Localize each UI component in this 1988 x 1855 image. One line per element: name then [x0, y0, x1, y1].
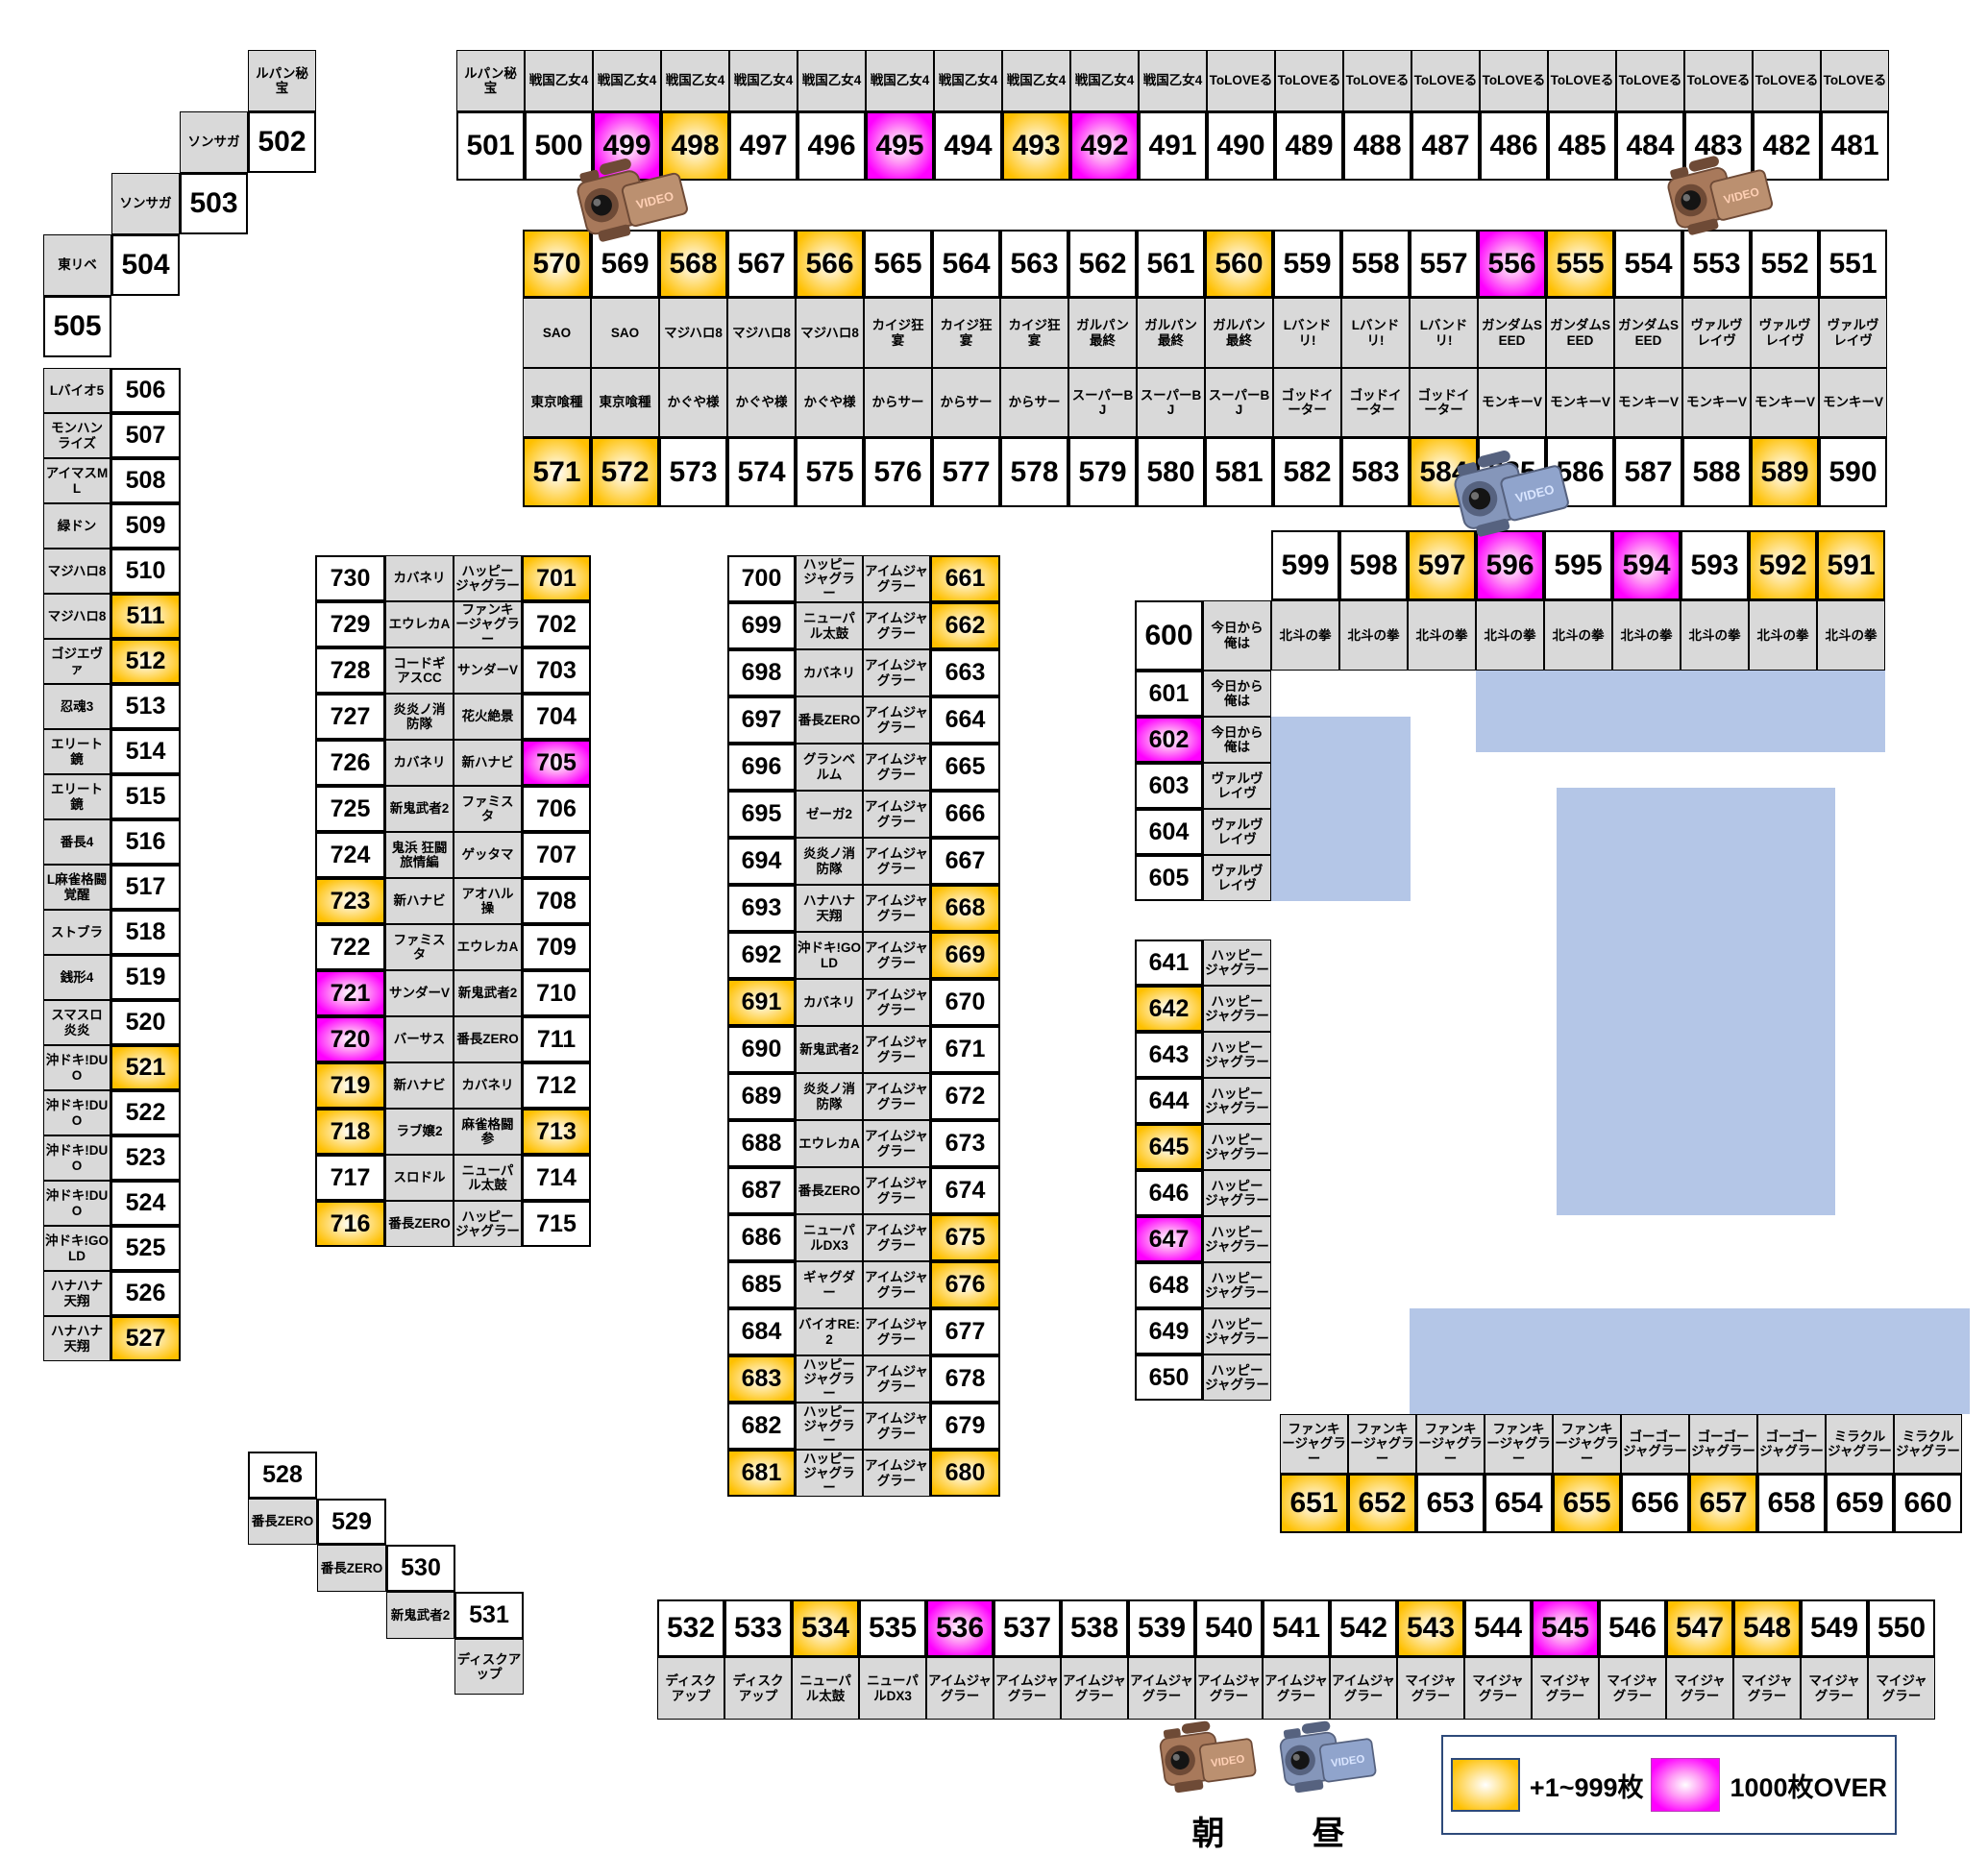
machine-cell-540: 540	[1195, 1599, 1263, 1657]
game-title-label: 戦国乙女4	[593, 50, 661, 111]
game-title-label: カイジ狂宴	[1000, 298, 1068, 368]
machine-cell-590: 590	[1819, 437, 1887, 507]
game-title-label: ミラクルジャグラー	[1894, 1414, 1962, 1474]
game-title-label: ファミスタ	[454, 786, 522, 832]
game-title-label: ファミスタ	[385, 924, 454, 970]
magenta-highlight-swatch-icon	[1651, 1758, 1720, 1812]
game-title-label: ゴジエヴァ	[43, 639, 110, 684]
game-title-label: ソンサガ	[111, 173, 180, 234]
machine-cell-712: 712	[522, 1062, 591, 1109]
video-camera-morning-icon: VIDEO	[1667, 152, 1775, 245]
game-title-label: アイムジャグラー	[1330, 1657, 1397, 1720]
game-title-label: ハッピージャグラー	[1203, 1355, 1271, 1401]
machine-cell-574: 574	[727, 437, 796, 507]
machine-cell-661: 661	[930, 555, 1000, 602]
game-title-label: ハッピージャグラー	[796, 555, 863, 602]
machine-cell-730: 730	[315, 555, 385, 601]
camcorder-icon: VIDEO	[566, 141, 699, 264]
machine-cell-728: 728	[315, 647, 385, 694]
machine-cell-549: 549	[1801, 1599, 1868, 1657]
machine-cell-548: 548	[1733, 1599, 1801, 1657]
machine-cell-537: 537	[994, 1599, 1061, 1657]
game-title-label: からサー	[932, 368, 1000, 437]
game-title-label: ヴァルヴレイヴ	[1203, 855, 1271, 901]
machine-cell-533: 533	[724, 1599, 792, 1657]
game-title-label: Lバイオ5	[43, 368, 110, 413]
machine-cell-497: 497	[729, 111, 798, 181]
vacant-floor-zone	[1476, 671, 1885, 752]
game-title-label: モンキーV	[1682, 368, 1751, 437]
game-title-label: アイムジャグラー	[863, 1355, 930, 1403]
machine-cell-556: 556	[1478, 230, 1546, 298]
game-title-label: アイムジャグラー	[994, 1657, 1061, 1720]
machine-cell-660: 660	[1894, 1474, 1962, 1533]
machine-cell-673: 673	[930, 1120, 1000, 1167]
machine-cell-714: 714	[522, 1155, 591, 1201]
game-title-label: マジハロ8	[43, 594, 110, 639]
machine-cell-729: 729	[315, 601, 385, 647]
machine-cell-581: 581	[1205, 437, 1273, 507]
machine-cell-652: 652	[1348, 1474, 1416, 1533]
game-title-label: 沖ドキ!DUO	[43, 1045, 110, 1090]
game-title-label: ハッピージャグラー	[1203, 1308, 1271, 1355]
game-title-label: マジハロ8	[659, 298, 727, 368]
game-title-label: 北斗の拳	[1749, 600, 1817, 671]
game-title-label: Lバンドリ!	[1410, 298, 1478, 368]
machine-cell-527: 527	[110, 1316, 181, 1361]
machine-cell-560: 560	[1205, 230, 1273, 298]
machine-cell-513: 513	[110, 684, 181, 729]
game-title-label: カイジ狂宴	[932, 298, 1000, 368]
game-title-label: エウレカA	[796, 1120, 863, 1167]
game-title-label: エリート鏡	[43, 774, 110, 819]
machine-cell-599: 599	[1271, 530, 1339, 600]
game-title-label: ガンダムSEED	[1478, 298, 1546, 368]
game-title-label: サンダーV	[385, 970, 454, 1016]
machine-cell-727: 727	[315, 694, 385, 740]
machine-cell-718: 718	[315, 1109, 385, 1155]
game-title-label: アイムジャグラー	[863, 555, 930, 602]
machine-cell-723: 723	[315, 878, 385, 924]
machine-cell-583: 583	[1341, 437, 1410, 507]
machine-cell-675: 675	[930, 1214, 1000, 1261]
machine-cell-550: 550	[1868, 1599, 1935, 1657]
game-title-label: エウレカA	[385, 601, 454, 647]
game-title-label: 沖ドキ!GOLD	[43, 1226, 110, 1271]
game-title-label: カバネリ	[385, 555, 454, 601]
camcorder-icon: VIDEO	[1443, 433, 1582, 560]
machine-cell-559: 559	[1273, 230, 1341, 298]
machine-cell-573: 573	[659, 437, 727, 507]
game-title-label: モンハンライズ	[43, 413, 110, 458]
game-title-label: アイムジャグラー	[863, 696, 930, 744]
game-title-label: ToLOVEる	[1684, 50, 1753, 111]
machine-cell-494: 494	[934, 111, 1002, 181]
game-title-label: ファンキージャグラー	[1485, 1414, 1553, 1474]
game-title-label: 東京喰種	[523, 368, 591, 437]
game-title-label: アイムジャグラー	[863, 1073, 930, 1120]
game-title-label: アイムジャグラー	[863, 838, 930, 885]
game-title-label: モンキーV	[1819, 368, 1887, 437]
game-title-label: 番長ZERO	[796, 696, 863, 744]
machine-cell-566: 566	[796, 230, 864, 298]
game-title-label: 銭形4	[43, 955, 110, 1000]
game-title-label: ニューパルDX3	[859, 1657, 926, 1720]
machine-cell-502: 502	[248, 111, 316, 173]
game-title-label: ギャグダー	[796, 1261, 863, 1308]
game-title-label: アイムジャグラー	[863, 885, 930, 932]
machine-cell-525: 525	[110, 1226, 181, 1271]
game-title-label: 北斗の拳	[1339, 600, 1408, 671]
game-title-label: バーサス	[385, 1016, 454, 1062]
machine-cell-508: 508	[110, 458, 181, 503]
machine-cell-544: 544	[1464, 1599, 1532, 1657]
game-title-label: ガンダムSEED	[1614, 298, 1682, 368]
machine-cell-667: 667	[930, 838, 1000, 885]
machine-cell-519: 519	[110, 955, 181, 1000]
machine-cell-516: 516	[110, 819, 181, 865]
game-title-label: 新鬼武者2	[385, 786, 454, 832]
game-title-label: 番長ZERO	[385, 1201, 454, 1247]
machine-cell-577: 577	[932, 437, 1000, 507]
machine-cell-526: 526	[110, 1271, 181, 1316]
game-title-label: 今日から俺は	[1203, 671, 1271, 717]
game-title-label: ルパン秘宝	[456, 50, 525, 111]
machine-cell-517: 517	[110, 865, 181, 910]
machine-cell-534: 534	[792, 1599, 859, 1657]
game-title-label: アオハル操	[454, 878, 522, 924]
machine-cell-693: 693	[727, 885, 796, 932]
game-title-label: カバネリ	[796, 979, 863, 1026]
machine-cell-600: 600	[1135, 600, 1203, 671]
game-title-label: ラブ嬢2	[385, 1109, 454, 1155]
game-title-label: かぐや様	[727, 368, 796, 437]
machine-cell-493: 493	[1002, 111, 1070, 181]
machine-cell-604: 604	[1135, 809, 1203, 855]
machine-cell-682: 682	[727, 1403, 796, 1450]
game-title-label: 鬼浜 狂闘旅情編	[385, 832, 454, 878]
game-title-label: 沖ドキ!GOLD	[796, 932, 863, 979]
machine-cell-592: 592	[1749, 530, 1817, 600]
game-title-label: ヴァルヴレイヴ	[1751, 298, 1819, 368]
machine-cell-664: 664	[930, 696, 1000, 744]
game-title-label: ハナハナ天翔	[43, 1271, 110, 1316]
game-title-label: ハッピージャグラー	[1203, 940, 1271, 986]
video-camera-noon-icon: VIDEO	[1454, 446, 1571, 548]
game-title-label: ToLOVEる	[1480, 50, 1548, 111]
machine-cell-707: 707	[522, 832, 591, 878]
game-title-label: カバネリ	[796, 649, 863, 696]
machine-cell-721: 721	[315, 970, 385, 1016]
game-title-label: 東リベ	[43, 234, 111, 296]
game-title-label: 戦国乙女4	[661, 50, 729, 111]
game-title-label: 北斗の拳	[1271, 600, 1339, 671]
machine-cell-601: 601	[1135, 671, 1203, 717]
machine-cell-503: 503	[180, 173, 248, 234]
game-title-label: 番長4	[43, 819, 110, 865]
machine-cell-645: 645	[1135, 1124, 1203, 1170]
game-title-label: 沖ドキ!DUO	[43, 1181, 110, 1226]
machine-cell-564: 564	[932, 230, 1000, 298]
machine-cell-651: 651	[1280, 1474, 1348, 1533]
game-title-label: モンキーV	[1751, 368, 1819, 437]
game-title-label: スーパーBJ	[1068, 368, 1137, 437]
machine-cell-598: 598	[1339, 530, 1408, 600]
game-title-label: ゴッドイーター	[1273, 368, 1341, 437]
game-title-label: 炎炎ノ消防隊	[796, 1073, 863, 1120]
machine-cell-650: 650	[1135, 1355, 1203, 1401]
machine-cell-492: 492	[1070, 111, 1139, 181]
game-title-label: カイジ狂宴	[864, 298, 932, 368]
game-title-label: マイジャグラー	[1868, 1657, 1935, 1720]
game-title-label: ハナハナ天翔	[796, 885, 863, 932]
machine-cell-511: 511	[110, 594, 181, 639]
machine-cell-680: 680	[930, 1450, 1000, 1497]
machine-cell-567: 567	[727, 230, 796, 298]
game-title-label: マジハロ8	[43, 549, 110, 594]
machine-cell-587: 587	[1614, 437, 1682, 507]
vacant-floor-zone	[1557, 788, 1835, 1215]
game-title-label: からサー	[864, 368, 932, 437]
game-title-label: アイマスML	[43, 458, 110, 503]
machine-cell-648: 648	[1135, 1262, 1203, 1308]
game-title-label: 戦国乙女4	[798, 50, 866, 111]
machine-cell-674: 674	[930, 1167, 1000, 1214]
machine-cell-575: 575	[796, 437, 864, 507]
game-title-label: ハッピージャグラー	[1203, 1262, 1271, 1308]
game-title-label: ストブラ	[43, 910, 110, 955]
game-title-label: ハッピージャグラー	[1203, 1216, 1271, 1262]
game-title-label: SAO	[523, 298, 591, 368]
machine-cell-644: 644	[1135, 1078, 1203, 1124]
game-title-label: ハッピージャグラー	[1203, 1170, 1271, 1216]
game-title-label: アイムジャグラー	[1263, 1657, 1330, 1720]
game-title-label: 沖ドキ!DUO	[43, 1090, 110, 1135]
machine-cell-591: 591	[1817, 530, 1885, 600]
machine-cell-509: 509	[110, 503, 181, 549]
machine-cell-565: 565	[864, 230, 932, 298]
machine-cell-531: 531	[454, 1592, 524, 1639]
game-title-label: 新鬼武者2	[796, 1026, 863, 1073]
machine-cell-523: 523	[110, 1135, 181, 1181]
game-title-label: からサー	[1000, 368, 1068, 437]
machine-cell-547: 547	[1666, 1599, 1733, 1657]
machine-cell-536: 536	[926, 1599, 994, 1657]
game-title-label: ファンキージャグラー	[454, 601, 522, 647]
machine-cell-505: 505	[43, 296, 111, 357]
machine-cell-689: 689	[727, 1073, 796, 1120]
game-title-label: ハッピージャグラー	[454, 1201, 522, 1247]
camcorder-icon: VIDEO	[1657, 140, 1784, 256]
game-title-label: 番長ZERO	[248, 1499, 317, 1545]
game-title-label: ゴーゴージャグラー	[1757, 1414, 1826, 1474]
machine-cell-677: 677	[930, 1308, 1000, 1355]
machine-cell-663: 663	[930, 649, 1000, 696]
game-title-label: マジハロ8	[796, 298, 864, 368]
machine-cell-514: 514	[110, 729, 181, 774]
machine-cell-522: 522	[110, 1090, 181, 1135]
game-title-label: ゲッタマ	[454, 832, 522, 878]
game-title-label: サンダーV	[454, 647, 522, 694]
machine-cell-724: 724	[315, 832, 385, 878]
game-title-label: ヴァルヴレイヴ	[1203, 763, 1271, 809]
game-title-label: 戦国乙女4	[525, 50, 593, 111]
legend: +1~999枚 1000枚OVER	[1441, 1735, 1897, 1835]
game-title-label: ファンキージャグラー	[1348, 1414, 1416, 1474]
game-title-label: ゴーゴージャグラー	[1689, 1414, 1757, 1474]
machine-cell-524: 524	[110, 1181, 181, 1226]
machine-cell-658: 658	[1757, 1474, 1826, 1533]
machine-cell-481: 481	[1821, 111, 1889, 181]
game-title-label: ヴァルヴレイヴ	[1819, 298, 1887, 368]
machine-cell-657: 657	[1689, 1474, 1757, 1533]
machine-cell-684: 684	[727, 1308, 796, 1355]
game-title-label: ニューパル太鼓	[796, 602, 863, 649]
game-title-label: ToLOVEる	[1411, 50, 1480, 111]
game-title-label: コードギアスCC	[385, 647, 454, 694]
game-title-label: アイムジャグラー	[863, 744, 930, 791]
game-title-label: バイオRE:2	[796, 1308, 863, 1355]
machine-cell-681: 681	[727, 1450, 796, 1497]
machine-cell-538: 538	[1061, 1599, 1128, 1657]
game-title-label: マジハロ8	[727, 298, 796, 368]
game-title-label: モンキーV	[1614, 368, 1682, 437]
game-title-label: アイムジャグラー	[863, 1450, 930, 1497]
game-title-label: 新鬼武者2	[454, 970, 522, 1016]
game-title-label: ファンキージャグラー	[1416, 1414, 1485, 1474]
machine-cell-512: 512	[110, 639, 181, 684]
game-title-label: ディスクアップ	[454, 1639, 524, 1695]
game-title-label: ゴッドイーター	[1341, 368, 1410, 437]
game-title-label: ハッピージャグラー	[1203, 986, 1271, 1032]
machine-cell-711: 711	[522, 1016, 591, 1062]
game-title-label: 戦国乙女4	[866, 50, 934, 111]
game-title-label: モンキーV	[1546, 368, 1614, 437]
camcorder-icon: VIDEO	[1272, 1711, 1385, 1812]
machine-cell-543: 543	[1397, 1599, 1464, 1657]
machine-cell-539: 539	[1128, 1599, 1195, 1657]
machine-cell-571: 571	[523, 437, 591, 507]
machine-cell-576: 576	[864, 437, 932, 507]
game-title-label: アイムジャグラー	[863, 1261, 930, 1308]
game-title-label: 北斗の拳	[1408, 600, 1476, 671]
game-title-label: ハッピージャグラー	[796, 1450, 863, 1497]
game-title-label: アイムジャグラー	[1128, 1657, 1195, 1720]
game-title-label: ディスクアップ	[657, 1657, 724, 1720]
game-title-label: ToLOVEる	[1821, 50, 1889, 111]
machine-cell-588: 588	[1682, 437, 1751, 507]
machine-cell-518: 518	[110, 910, 181, 955]
machine-cell-643: 643	[1135, 1032, 1203, 1078]
machine-cell-580: 580	[1137, 437, 1205, 507]
machine-cell-572: 572	[591, 437, 659, 507]
game-title-label: 炎炎ノ消防隊	[796, 838, 863, 885]
game-title-label: アイムジャグラー	[863, 791, 930, 838]
game-title-label: アイムジャグラー	[1061, 1657, 1128, 1720]
machine-cell-582: 582	[1273, 437, 1341, 507]
machine-cell-700: 700	[727, 555, 796, 602]
game-title-label: マイジャグラー	[1532, 1657, 1599, 1720]
machine-cell-690: 690	[727, 1026, 796, 1073]
machine-cell-695: 695	[727, 791, 796, 838]
game-title-label: アイムジャグラー	[863, 979, 930, 1026]
machine-cell-688: 688	[727, 1120, 796, 1167]
game-title-label: ディスクアップ	[724, 1657, 792, 1720]
machine-cell-726: 726	[315, 740, 385, 786]
machine-cell-489: 489	[1275, 111, 1343, 181]
machine-cell-653: 653	[1416, 1474, 1485, 1533]
game-title-label: マイジャグラー	[1733, 1657, 1801, 1720]
game-title-label: アイムジャグラー	[863, 1120, 930, 1167]
machine-cell-530: 530	[386, 1545, 455, 1592]
floor-map: +1~999枚 1000枚OVER ルパン秘宝ソンサガ502ソンサガ503東リベ…	[0, 0, 1988, 1855]
machine-cell-496: 496	[798, 111, 866, 181]
game-title-label: アイムジャグラー	[863, 602, 930, 649]
machine-cell-558: 558	[1341, 230, 1410, 298]
game-title-label: スーパーBJ	[1137, 368, 1205, 437]
machine-cell-709: 709	[522, 924, 591, 970]
machine-cell-579: 579	[1068, 437, 1137, 507]
game-title-label: ソンサガ	[180, 111, 248, 173]
game-title-label: 東京喰種	[591, 368, 659, 437]
game-title-label: ガルパン最終	[1137, 298, 1205, 368]
game-title-label: ルパン秘宝	[248, 50, 316, 111]
game-title-label: ToLOVEる	[1275, 50, 1343, 111]
game-title-label: ガルパン最終	[1205, 298, 1273, 368]
game-title-label: アイムジャグラー	[863, 932, 930, 979]
game-title-label: 新ハナビ	[385, 878, 454, 924]
game-title-label: 戦国乙女4	[729, 50, 798, 111]
game-title-label: アイムジャグラー	[863, 1403, 930, 1450]
game-title-label: Lバンドリ!	[1341, 298, 1410, 368]
machine-cell-515: 515	[110, 774, 181, 819]
game-title-label: 北斗の拳	[1544, 600, 1612, 671]
machine-cell-528: 528	[248, 1452, 317, 1499]
game-title-label: カバネリ	[385, 740, 454, 786]
game-title-label: 番長ZERO	[317, 1545, 386, 1592]
game-title-label: カバネリ	[454, 1062, 522, 1109]
machine-cell-510: 510	[110, 549, 181, 594]
game-title-label: ToLOVEる	[1548, 50, 1616, 111]
machine-cell-710: 710	[522, 970, 591, 1016]
game-title-label: スロドル	[385, 1155, 454, 1201]
machine-cell-561: 561	[1137, 230, 1205, 298]
machine-cell-521: 521	[110, 1045, 181, 1090]
game-title-label: ファンキージャグラー	[1553, 1414, 1621, 1474]
machine-cell-705: 705	[522, 740, 591, 786]
machine-cell-649: 649	[1135, 1308, 1203, 1355]
game-title-label: 北斗の拳	[1476, 600, 1544, 671]
game-title-label: 新ハナビ	[385, 1062, 454, 1109]
game-title-label: アイムジャグラー	[863, 649, 930, 696]
machine-cell-490: 490	[1207, 111, 1275, 181]
game-title-label: 戦国乙女4	[1002, 50, 1070, 111]
game-title-label: エウレカA	[454, 924, 522, 970]
game-title-label: スーパーBJ	[1205, 368, 1273, 437]
machine-cell-504: 504	[111, 234, 180, 296]
machine-cell-541: 541	[1263, 1599, 1330, 1657]
machine-cell-555: 555	[1546, 230, 1614, 298]
machine-cell-722: 722	[315, 924, 385, 970]
game-title-label: マイジャグラー	[1599, 1657, 1666, 1720]
machine-cell-589: 589	[1751, 437, 1819, 507]
game-title-label: かぐや様	[659, 368, 727, 437]
game-title-label: アイムジャグラー	[863, 1026, 930, 1073]
game-title-label: 炎炎ノ消防隊	[385, 694, 454, 740]
machine-cell-669: 669	[930, 932, 1000, 979]
machine-cell-692: 692	[727, 932, 796, 979]
machine-cell-656: 656	[1621, 1474, 1689, 1533]
